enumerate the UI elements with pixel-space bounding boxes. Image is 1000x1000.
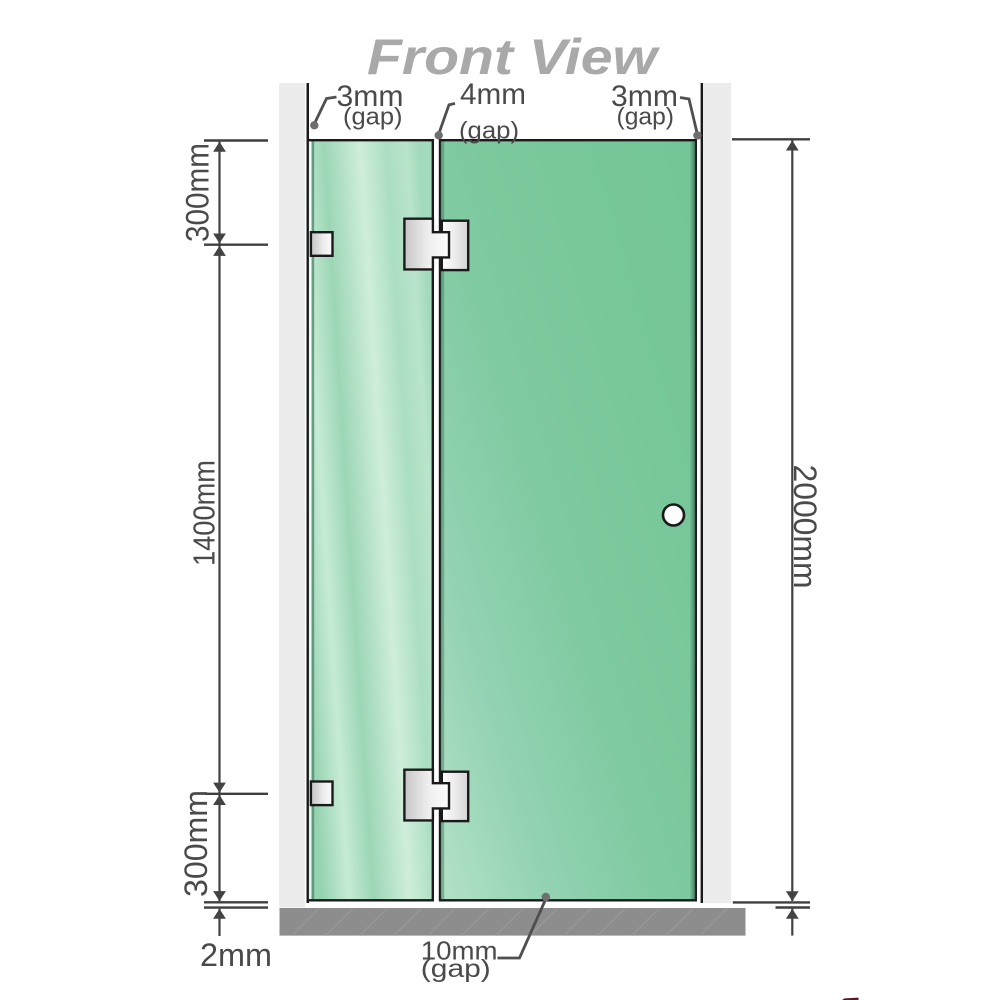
svg-text:300mm: 300mm bbox=[180, 143, 216, 242]
svg-text:4mm: 4mm bbox=[460, 78, 526, 111]
svg-text:300mm: 300mm bbox=[178, 790, 214, 897]
svg-text:(gap): (gap) bbox=[617, 103, 675, 130]
svg-text:1400mm: 1400mm bbox=[187, 460, 222, 566]
svg-text:Front View: Front View bbox=[367, 29, 661, 85]
svg-text:2mm: 2mm bbox=[200, 937, 272, 973]
svg-text:2000mm: 2000mm bbox=[787, 465, 823, 589]
svg-text:(gap): (gap) bbox=[421, 955, 491, 983]
svg-text:(gap): (gap) bbox=[459, 118, 519, 145]
svg-text:(gap): (gap) bbox=[343, 103, 403, 130]
